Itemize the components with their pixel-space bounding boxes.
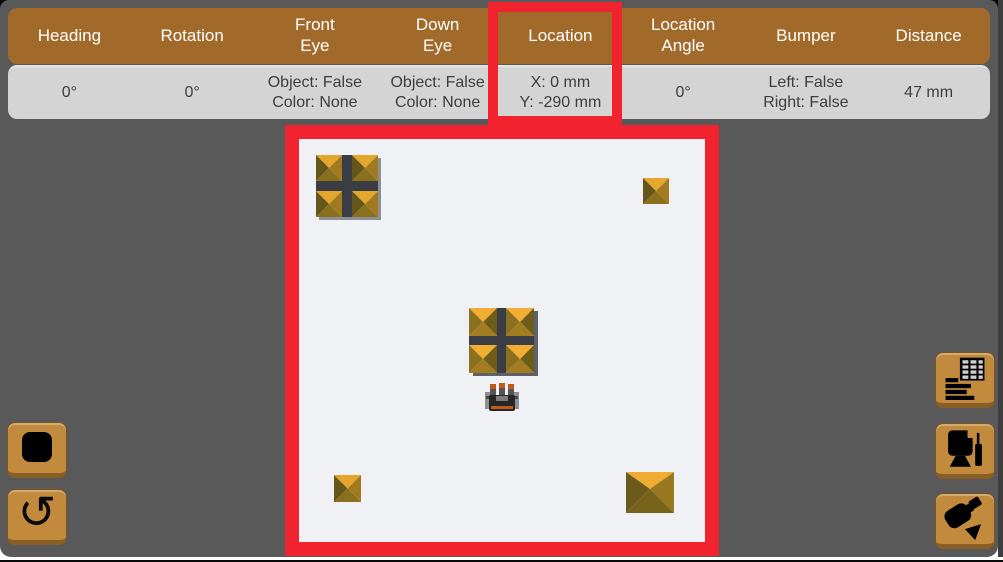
pyramid-cluster-top-left [316, 155, 378, 217]
column-header-distance: Distance [867, 26, 990, 47]
pyramid-bottom-left [334, 475, 361, 502]
robot[interactable] [485, 383, 519, 413]
sensor-value-heading: 0° [8, 83, 131, 103]
sensor-table-header: Heading Rotation Front Eye Down Eye Loca… [8, 8, 990, 64]
reset-button[interactable]: ↺ [7, 489, 67, 545]
window-right-edge [998, 0, 1003, 557]
column-header-location: Location [499, 26, 622, 47]
data-table-icon [943, 355, 987, 401]
stop-button[interactable] [7, 422, 67, 478]
sensor-value-bumper: Left: False Right: False [745, 73, 868, 112]
camera-icon [943, 496, 987, 542]
pyramid-cluster-center [469, 308, 534, 373]
play-field[interactable] [299, 139, 705, 542]
sensor-value-location: X: 0 mm Y: -290 mm [499, 73, 622, 112]
column-header-location-angle: Location Angle [622, 15, 745, 56]
column-header-bumper: Bumper [745, 26, 868, 47]
column-header-heading: Heading [8, 26, 131, 47]
stop-icon [22, 432, 52, 462]
sensor-value-location-angle: 0° [622, 83, 745, 103]
pyramid-bottom-right [626, 472, 674, 513]
simulator-window: Heading Rotation Front Eye Down Eye Loca… [0, 0, 998, 557]
sensor-value-front-eye: Object: False Color: None [254, 73, 377, 112]
monitor-button[interactable] [935, 423, 995, 479]
pyramid-top-right [643, 178, 669, 204]
monitor-icon [943, 426, 987, 472]
sensor-value-rotation: 0° [131, 83, 254, 103]
sensor-value-distance: 47 mm [867, 83, 990, 103]
reset-icon: ↺ [18, 489, 57, 535]
sensor-table-values: 0° 0° Object: False Color: None Object: … [8, 65, 990, 119]
sensor-dashboard: Heading Rotation Front Eye Down Eye Loca… [8, 8, 990, 119]
play-field-border [285, 125, 719, 556]
column-header-rotation: Rotation [131, 26, 254, 47]
camera-button[interactable] [935, 493, 995, 549]
column-header-down-eye: Down Eye [376, 15, 499, 56]
screenshot-canvas: Heading Rotation Front Eye Down Eye Loca… [0, 0, 1003, 562]
sensor-value-down-eye: Object: False Color: None [376, 73, 499, 112]
column-header-front-eye: Front Eye [254, 15, 377, 56]
data-table-button[interactable] [935, 352, 995, 408]
